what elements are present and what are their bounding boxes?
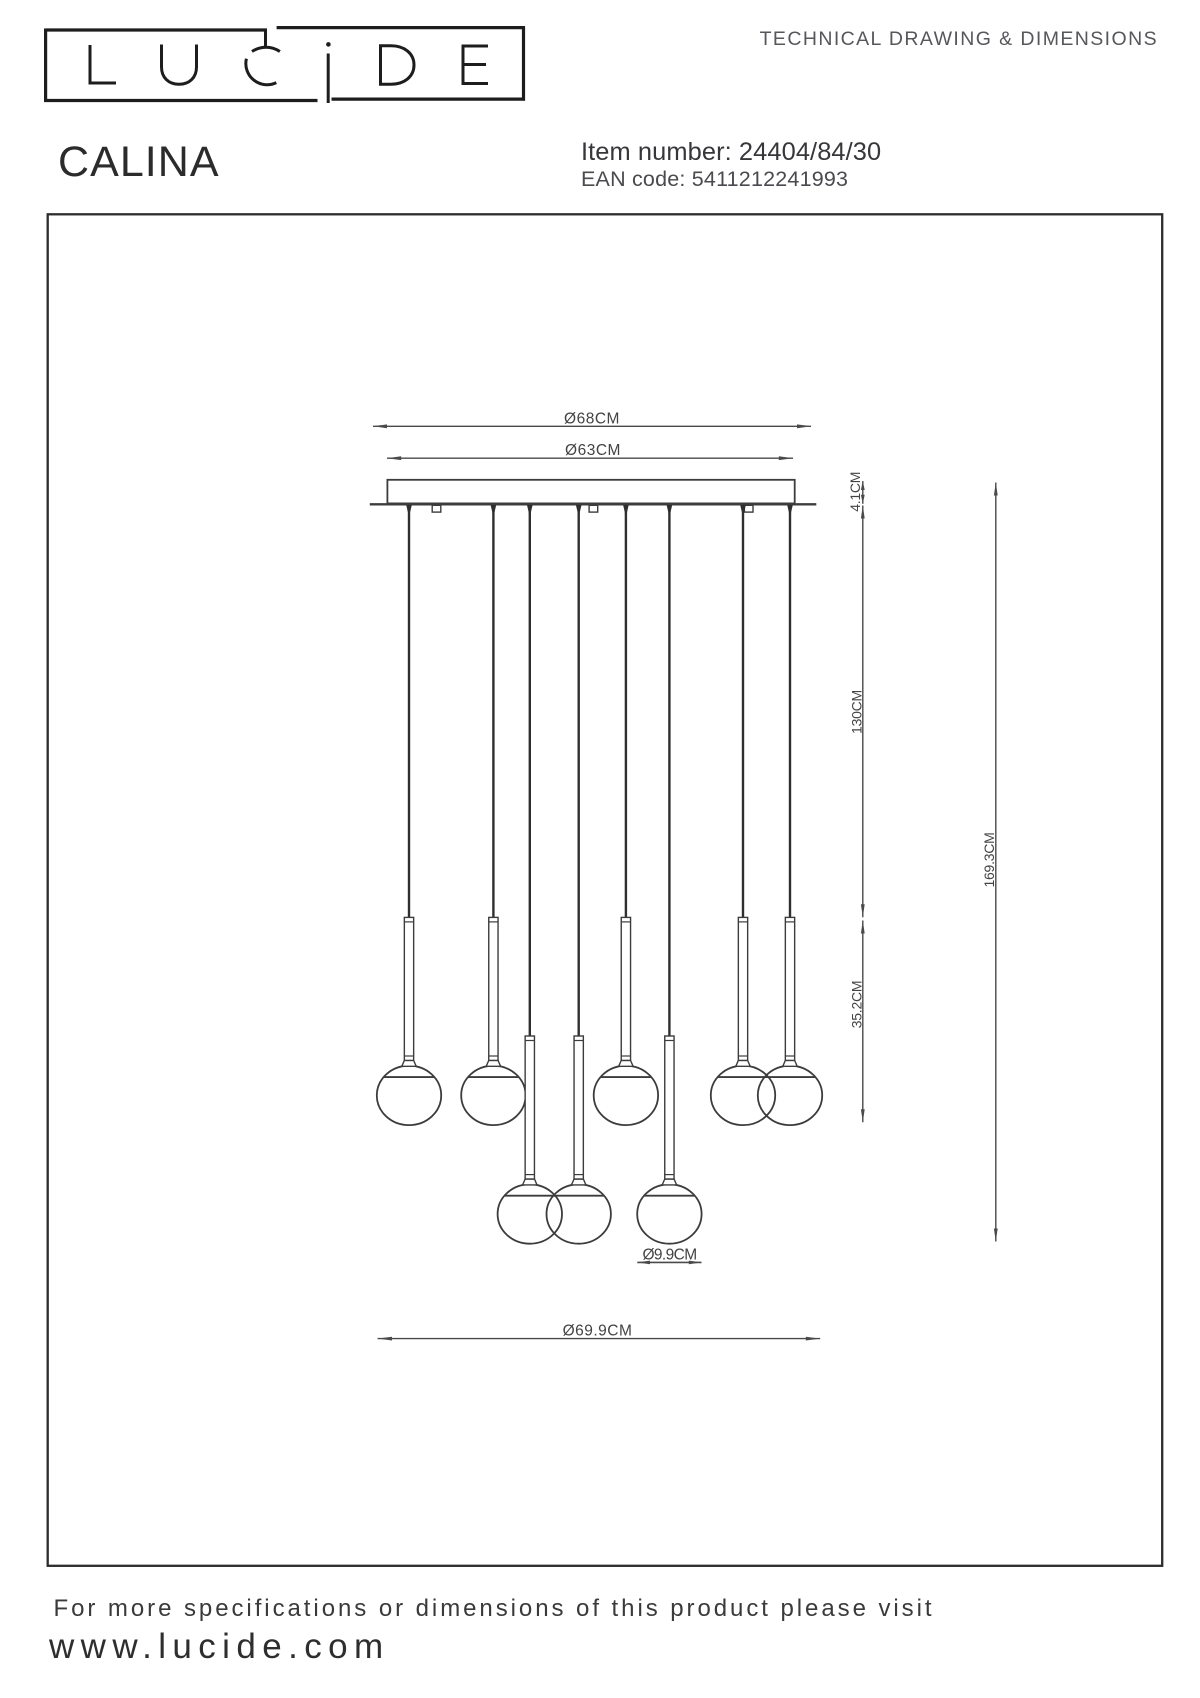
svg-text:4.1CM: 4.1CM — [847, 472, 863, 512]
svg-text:Ø68CM: Ø68CM — [564, 410, 620, 427]
svg-text:35.2CM: 35.2CM — [849, 981, 865, 1029]
svg-text:130CM: 130CM — [849, 690, 865, 734]
svg-text:169.3CM: 169.3CM — [981, 832, 997, 887]
svg-text:Ø63CM: Ø63CM — [565, 442, 621, 459]
svg-text:Ø9.9CM: Ø9.9CM — [642, 1247, 696, 1264]
svg-text:Ø69.9CM: Ø69.9CM — [563, 1322, 633, 1339]
